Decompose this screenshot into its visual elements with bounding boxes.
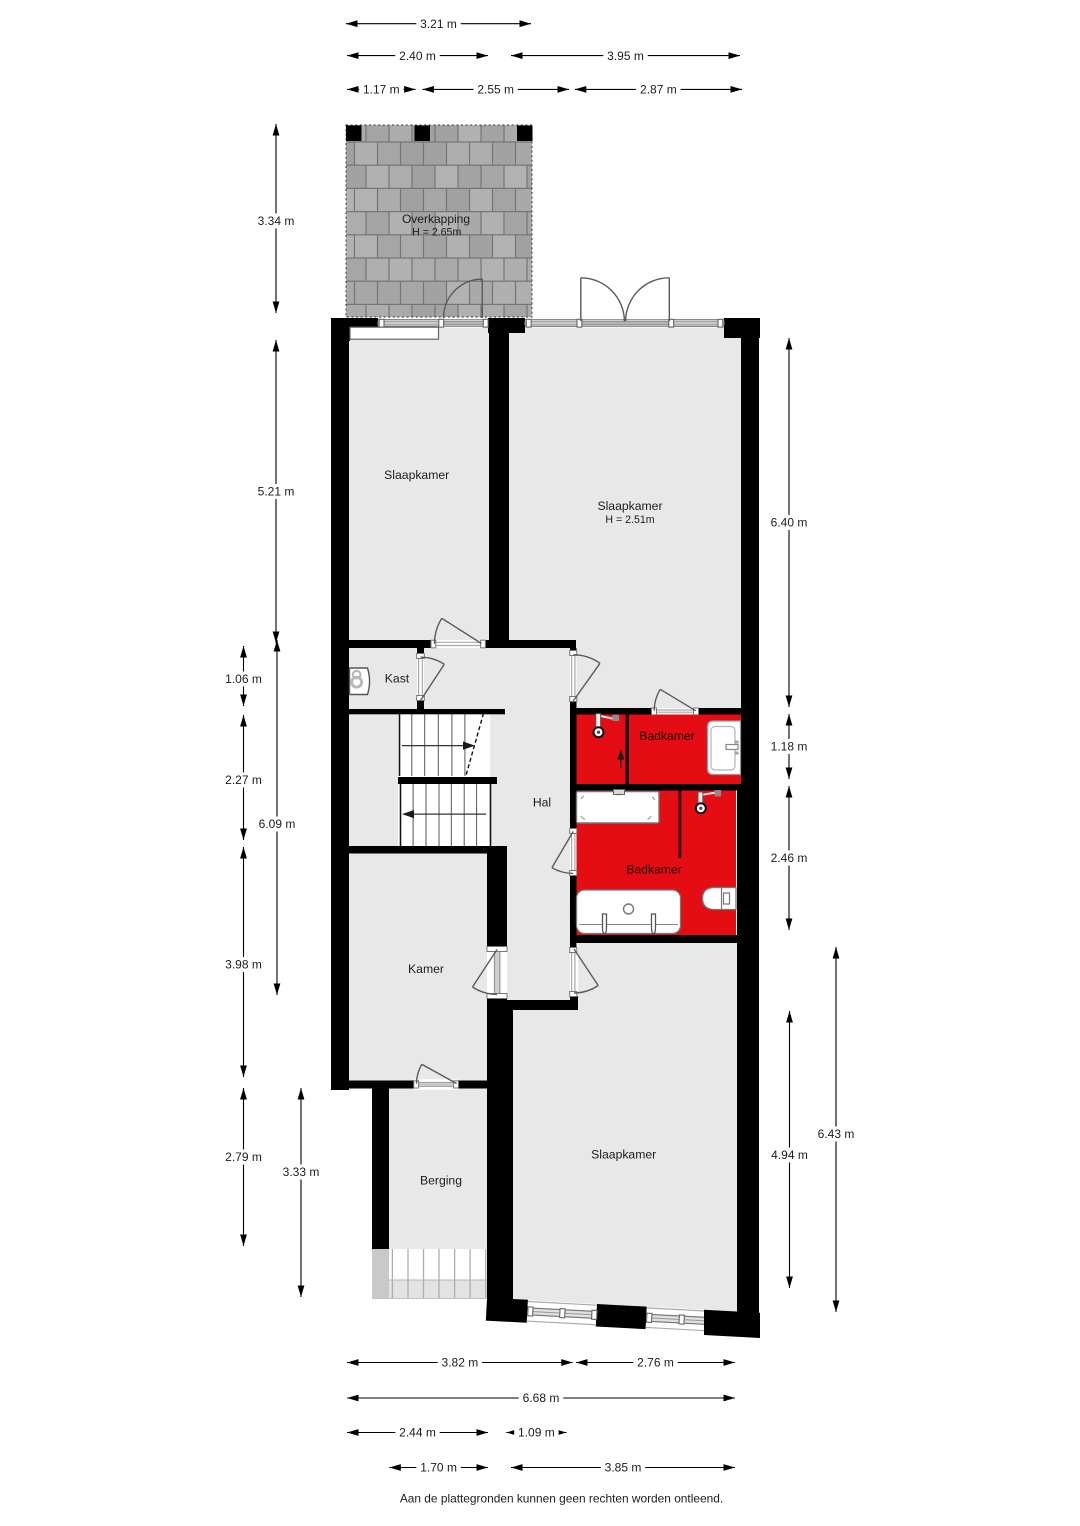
svg-text:H = 2.51m: H = 2.51m — [605, 514, 654, 526]
svg-text:Slaapkamer: Slaapkamer — [591, 1148, 656, 1162]
svg-text:6.40 m: 6.40 m — [771, 516, 808, 530]
svg-text:3.33 m: 3.33 m — [283, 1165, 320, 1179]
svg-text:2.46 m: 2.46 m — [771, 851, 808, 865]
svg-text:Berging: Berging — [420, 1173, 462, 1187]
svg-text:4.94 m: 4.94 m — [771, 1148, 808, 1162]
svg-text:Kast: Kast — [385, 671, 410, 685]
svg-text:2.44 m: 2.44 m — [399, 1426, 436, 1440]
svg-text:3.21 m: 3.21 m — [420, 17, 457, 31]
svg-text:1.70 m: 1.70 m — [420, 1461, 457, 1475]
svg-text:2.27 m: 2.27 m — [225, 773, 262, 787]
svg-text:6.43 m: 6.43 m — [818, 1127, 855, 1141]
svg-text:1.17 m: 1.17 m — [363, 83, 400, 97]
svg-text:1.06 m: 1.06 m — [225, 672, 262, 686]
svg-text:Badkamer: Badkamer — [639, 729, 695, 743]
svg-text:2.87 m: 2.87 m — [640, 83, 677, 97]
svg-text:Slaapkamer: Slaapkamer — [384, 468, 449, 482]
svg-text:3.95 m: 3.95 m — [607, 49, 644, 63]
svg-text:Aan de plattegronden kunnen ge: Aan de plattegronden kunnen geen rechten… — [400, 1492, 723, 1506]
svg-text:3.98 m: 3.98 m — [225, 958, 262, 972]
svg-text:6.68 m: 6.68 m — [523, 1391, 560, 1405]
svg-text:2.76 m: 2.76 m — [637, 1356, 674, 1370]
svg-text:5.21 m: 5.21 m — [258, 485, 295, 499]
svg-text:2.79 m: 2.79 m — [225, 1150, 262, 1164]
svg-text:1.18 m: 1.18 m — [771, 740, 808, 754]
svg-text:2.55 m: 2.55 m — [477, 83, 514, 97]
svg-text:H = 2.65m: H = 2.65m — [412, 227, 461, 239]
svg-text:2.40 m: 2.40 m — [399, 49, 436, 63]
svg-text:Badkamer: Badkamer — [626, 863, 682, 877]
svg-text:Overkapping: Overkapping — [402, 212, 470, 226]
svg-text:3.34 m: 3.34 m — [258, 214, 295, 228]
svg-text:Slaapkamer: Slaapkamer — [597, 499, 662, 513]
svg-text:3.82 m: 3.82 m — [442, 1356, 479, 1370]
svg-text:Kamer: Kamer — [408, 962, 444, 976]
svg-text:1.09 m: 1.09 m — [518, 1426, 555, 1440]
svg-text:Hal: Hal — [533, 796, 551, 810]
svg-text:6.09 m: 6.09 m — [259, 817, 296, 831]
svg-text:3.85 m: 3.85 m — [605, 1461, 642, 1475]
